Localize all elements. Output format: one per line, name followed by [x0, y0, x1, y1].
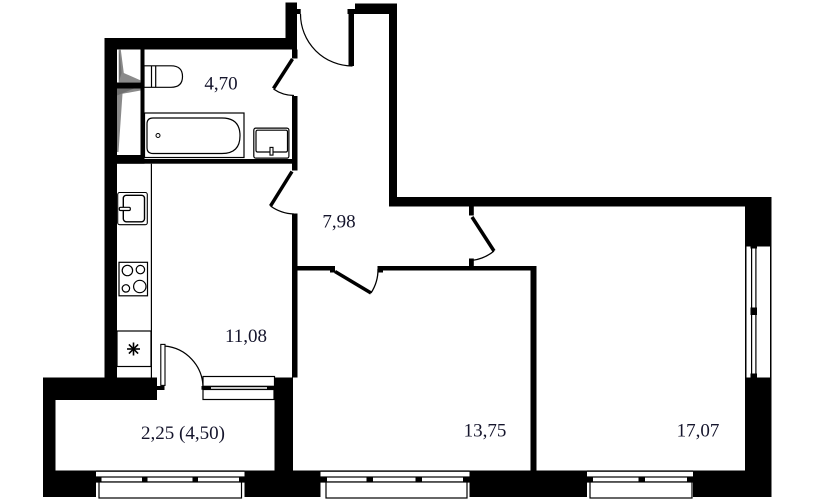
svg-text:11,08: 11,08	[225, 326, 267, 347]
svg-text:13,75: 13,75	[464, 421, 507, 442]
svg-text:4,70: 4,70	[204, 74, 237, 95]
svg-text:7,98: 7,98	[322, 212, 355, 233]
svg-text:2,25 (4,50): 2,25 (4,50)	[141, 423, 225, 444]
svg-text:17,07: 17,07	[677, 421, 720, 442]
